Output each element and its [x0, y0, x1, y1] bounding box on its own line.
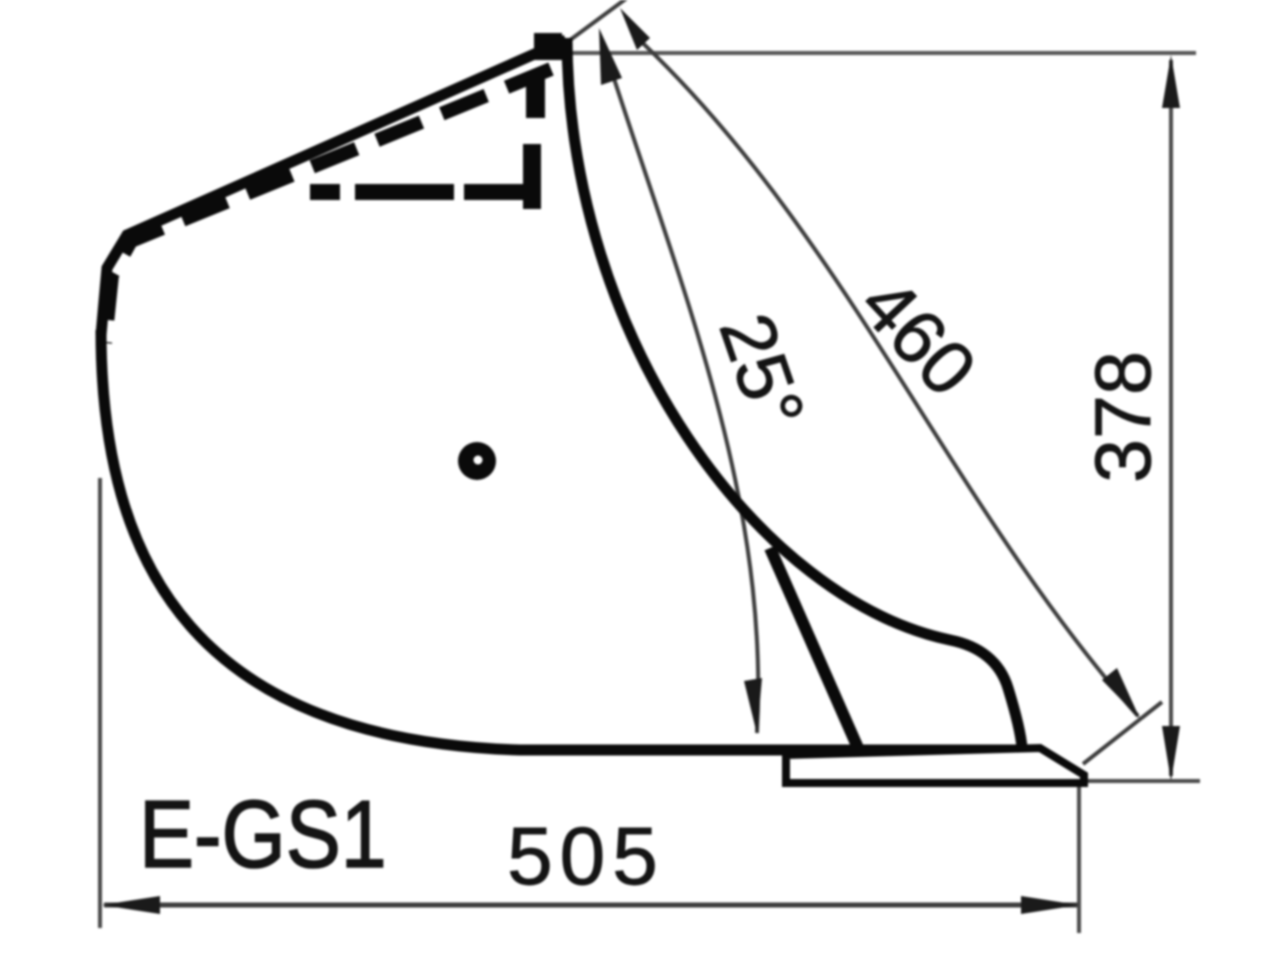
svg-text:E-GS1: E-GS1 — [139, 780, 387, 887]
svg-text:378: 378 — [1078, 351, 1167, 483]
svg-text:505: 505 — [507, 811, 665, 902]
